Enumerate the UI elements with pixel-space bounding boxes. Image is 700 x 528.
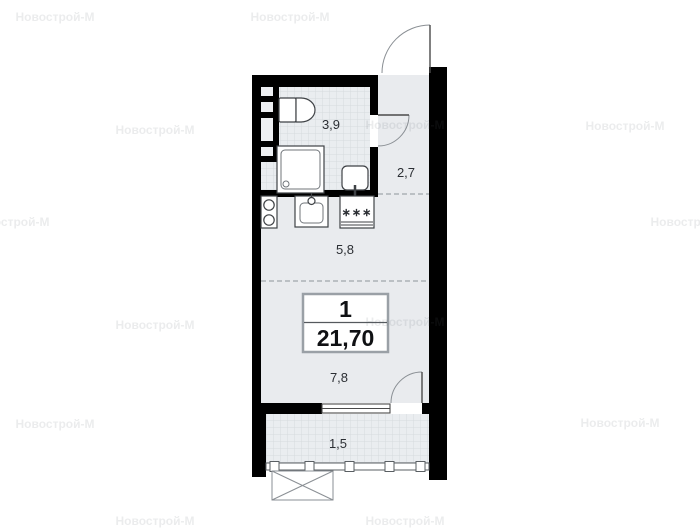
wall-left-upper — [252, 75, 261, 407]
ventilation-shaft — [261, 87, 279, 162]
glazing-mullion — [416, 462, 425, 472]
shaft-divider — [261, 96, 273, 102]
wall-left-lower — [252, 403, 266, 477]
unit-number: 1 — [339, 296, 352, 322]
entrance-door-arc — [382, 25, 430, 73]
glazing-mullion — [305, 462, 314, 472]
floor-plan: ∗∗∗ 1 21,70 3,9 2,7 5,8 7,8 1,5 — [0, 0, 700, 525]
unit-info-box: 1 21,70 — [303, 294, 388, 352]
stove-burner — [264, 200, 274, 210]
unit-total-area: 21,70 — [317, 325, 375, 351]
kitchen-area-label: 5,8 — [336, 242, 354, 257]
balcony-floor — [266, 414, 429, 463]
balcony-area-label: 1,5 — [329, 436, 347, 451]
fridge: ∗∗∗ — [340, 196, 374, 228]
wall-bathroom-hallway-upper — [370, 87, 378, 115]
wall-bathroom-hallway-lower — [370, 147, 378, 197]
balcony-glazing — [266, 462, 429, 472]
toilet-tank — [279, 98, 296, 122]
wall-bottom-left — [252, 403, 322, 414]
fridge-stars-symbol: ∗∗∗ — [342, 207, 373, 219]
glazing-mullion — [385, 462, 394, 472]
floor-plan-page: { "watermark": { "text": "Новострой-М" }… — [0, 0, 700, 525]
glazing-mullion — [345, 462, 354, 472]
shaft-divider — [261, 112, 273, 118]
entrance-door — [382, 25, 430, 73]
window — [322, 404, 390, 413]
shower-tray — [277, 146, 324, 193]
kitchen-sink-tap — [308, 198, 315, 205]
wall-top — [252, 75, 378, 87]
stove — [261, 196, 277, 228]
lower-balcony-outline — [272, 471, 333, 500]
glazing-mullion — [270, 462, 279, 472]
stove-burner — [264, 215, 274, 225]
wall-right — [429, 67, 447, 480]
toilet — [279, 98, 315, 122]
wall-balcony-door-step — [422, 403, 429, 414]
hallway-area-label: 2,7 — [397, 165, 415, 180]
living-area-label: 7,8 — [330, 370, 348, 385]
bathroom-area-label: 3,9 — [322, 117, 340, 132]
shaft-divider — [261, 141, 273, 147]
kitchen-sink — [295, 194, 328, 228]
